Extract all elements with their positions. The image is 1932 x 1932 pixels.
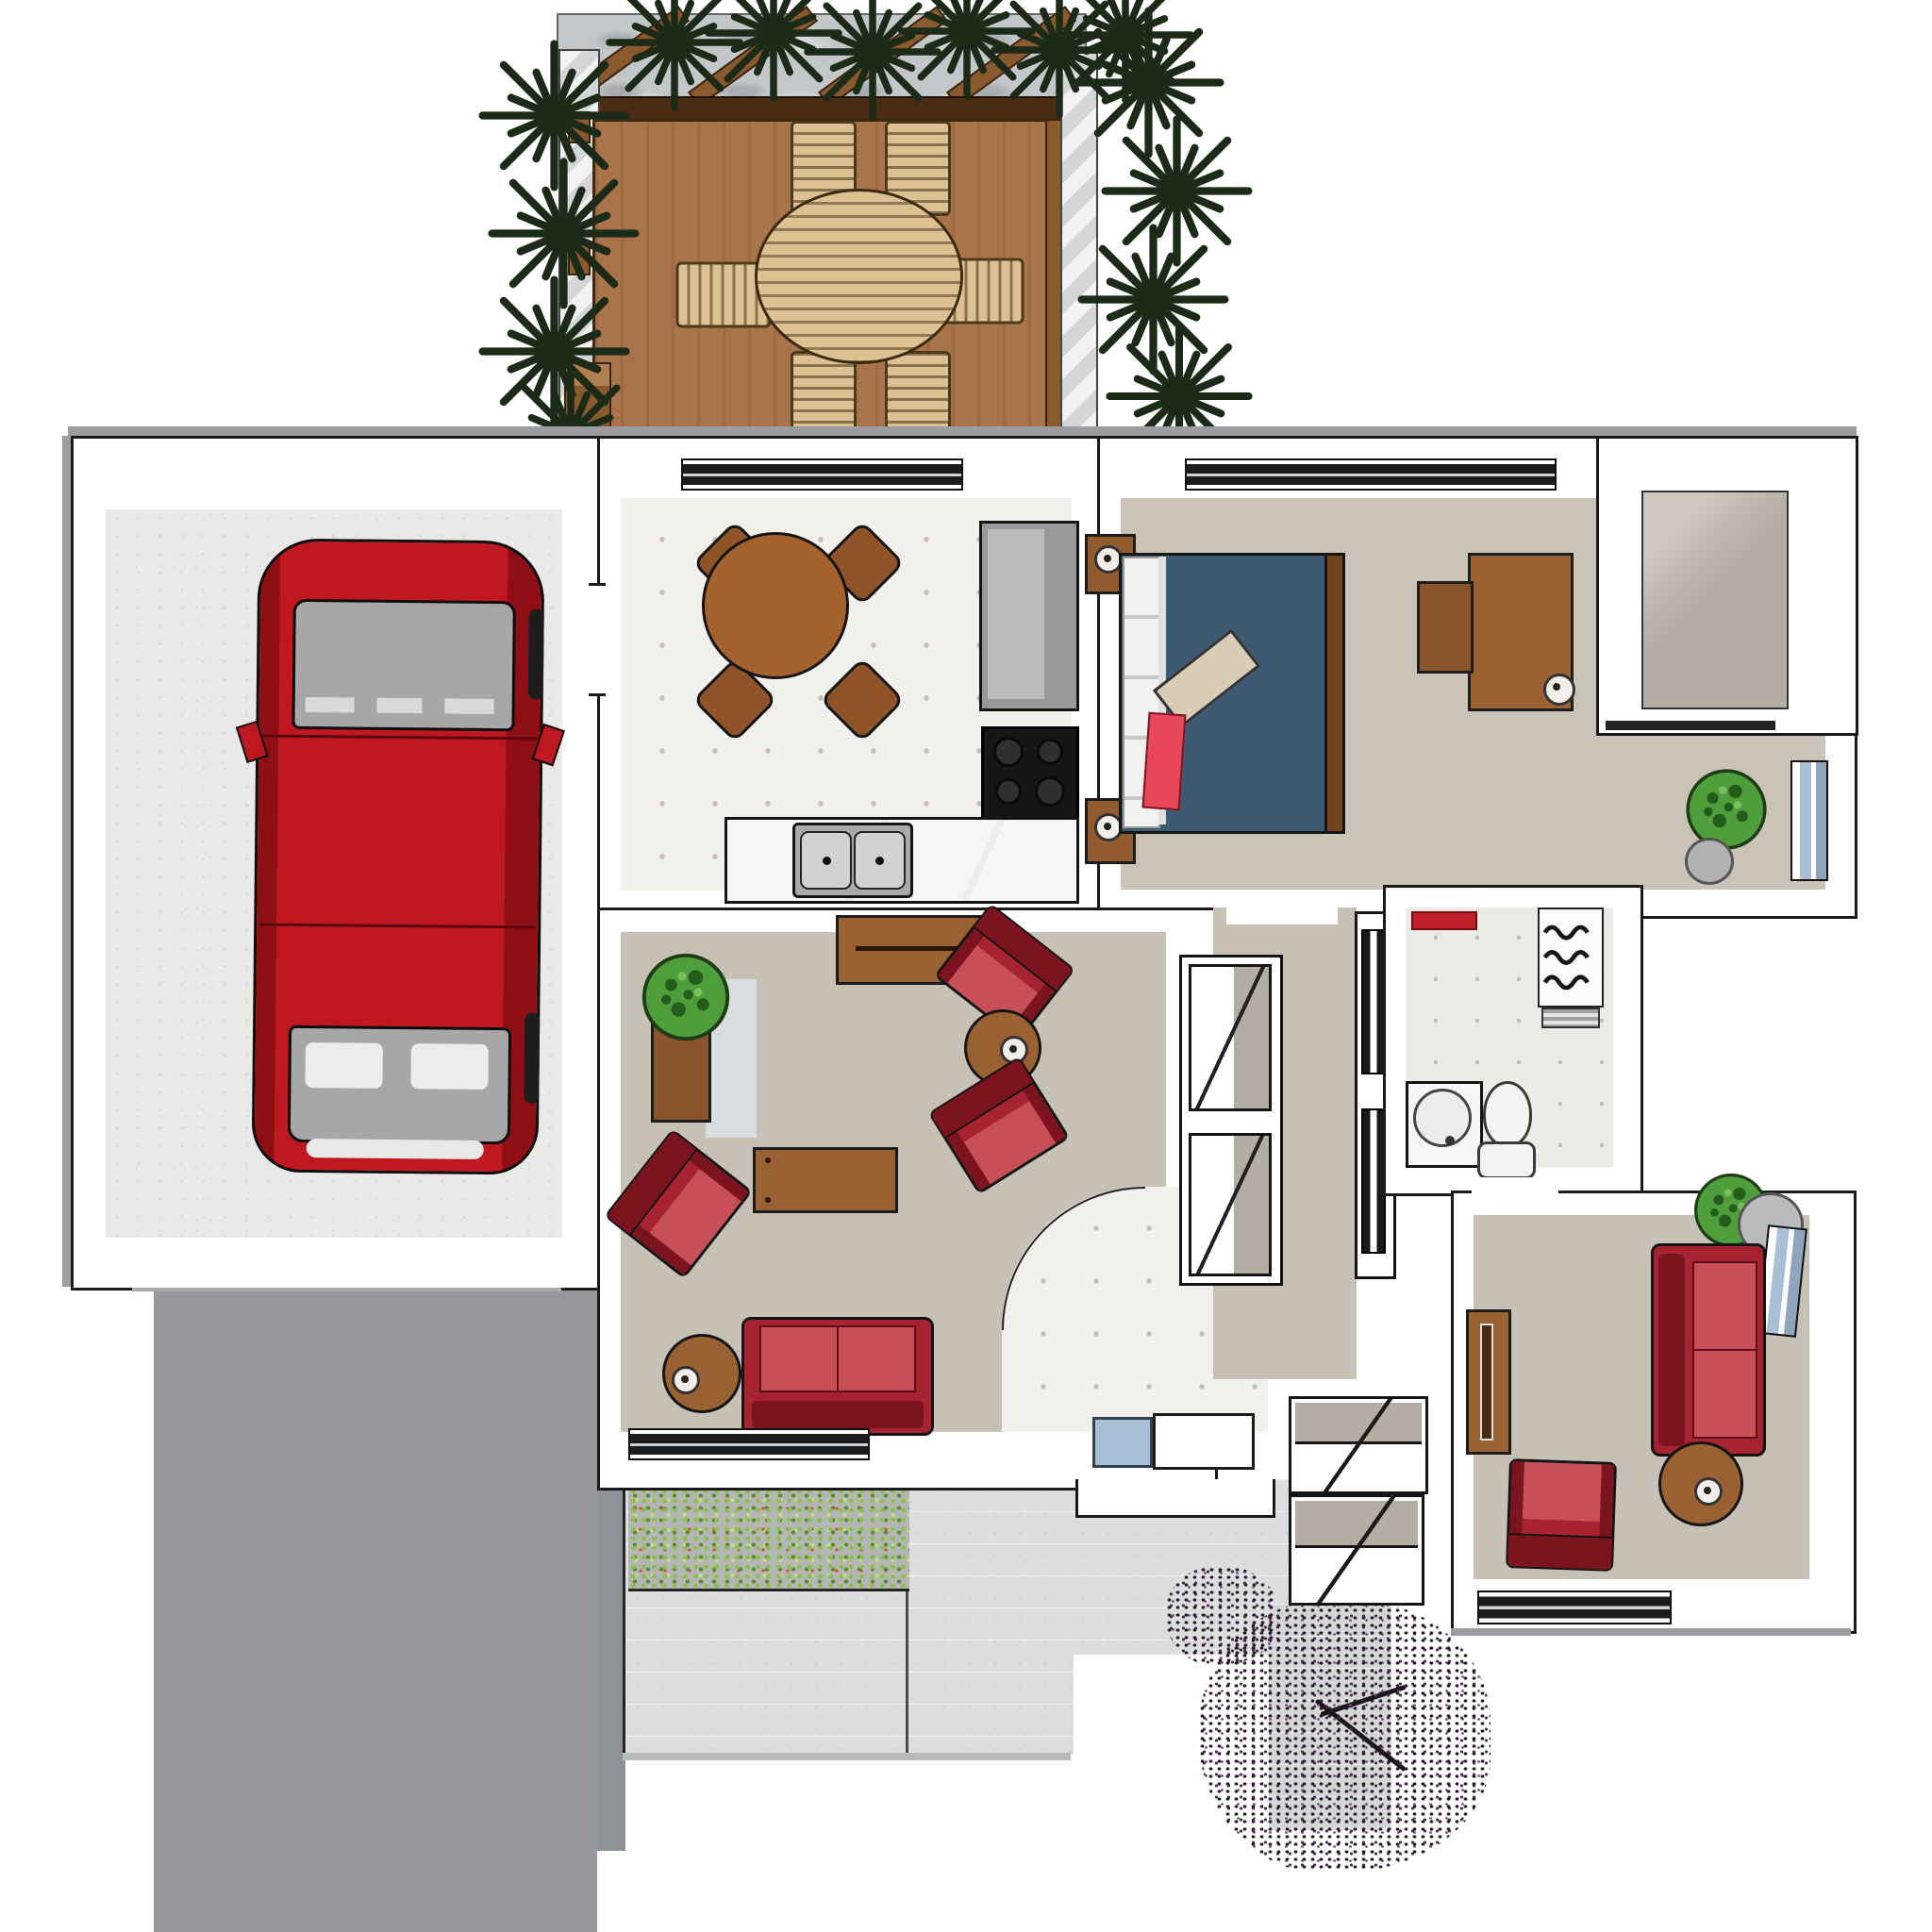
entry-step	[1075, 1479, 1275, 1518]
kitchen-window	[681, 458, 963, 491]
refrigerator	[979, 521, 1079, 711]
shower-glass-icon	[1540, 909, 1602, 1006]
car-wheel	[524, 1012, 540, 1103]
round-dining-table	[702, 532, 849, 679]
closet-floor	[1641, 491, 1789, 709]
den-door-opening	[1472, 1177, 1558, 1206]
coffee-table-knot	[765, 1158, 771, 1163]
bookshelf-slot	[1480, 1324, 1493, 1441]
bed-red-throw	[1141, 712, 1186, 811]
pedestal-sink	[1413, 1089, 1472, 1147]
garage-door-opening	[132, 1275, 561, 1291]
den-bottom-edge	[1451, 1628, 1851, 1636]
bedroom-side-window	[1790, 760, 1828, 881]
car-rear-trim	[307, 1139, 484, 1159]
bedroom-hall-opening	[1226, 892, 1338, 924]
refrigerator-door	[988, 529, 1044, 699]
stove-burner	[1037, 739, 1063, 765]
den-window	[1477, 1591, 1672, 1624]
driveway-edge	[597, 1483, 625, 1851]
car-rear-seat	[410, 1043, 488, 1090]
sofa	[741, 1317, 934, 1436]
bed-footboard	[1324, 553, 1345, 834]
hall-builtin-closet	[1179, 955, 1283, 1286]
car-wheel	[528, 608, 544, 699]
stove	[981, 726, 1079, 821]
coffee-table-knot	[765, 1197, 771, 1203]
floor-plan-canvas	[0, 0, 1932, 1932]
shower	[1538, 908, 1604, 1008]
house-left-edge	[62, 436, 71, 1287]
plant-pot	[1685, 838, 1734, 885]
sink-basin	[854, 831, 906, 890]
desk-accessory	[1543, 674, 1575, 706]
door-mat	[1092, 1417, 1153, 1468]
car-headrests	[306, 697, 494, 714]
driveway	[154, 1274, 597, 1932]
front-door-leaf	[1153, 1413, 1255, 1470]
sideboard-handle	[856, 946, 959, 951]
house-top-edge	[68, 426, 1857, 436]
living-room-window	[628, 1428, 870, 1460]
garage-kitchen-door	[589, 583, 606, 696]
shower-base	[1541, 1008, 1600, 1028]
closet-cubby	[1189, 964, 1272, 1111]
stove-burner	[993, 737, 1024, 767]
den-armchair	[1506, 1458, 1617, 1572]
flower-bed	[628, 1477, 909, 1591]
linen-closet	[1289, 1396, 1428, 1494]
red-car	[251, 538, 544, 1174]
den-sofa	[1651, 1243, 1766, 1457]
side-table-cup	[672, 1366, 700, 1394]
planter-plant-icon	[625, 936, 747, 1058]
desk-chair	[1417, 581, 1474, 674]
car-rear-seat	[305, 1042, 382, 1089]
den-bookshelf	[1466, 1309, 1511, 1455]
den-table-cup	[1694, 1477, 1723, 1506]
toilet-bowl	[1483, 1081, 1532, 1147]
toilet-tank	[1477, 1141, 1536, 1179]
coffee-table	[753, 1147, 898, 1213]
closet-cubby	[1189, 1133, 1272, 1276]
stove-burner	[1035, 776, 1065, 807]
stove-burner	[995, 778, 1022, 805]
pavement-sill	[623, 1753, 1071, 1760]
sink-basin	[800, 831, 852, 890]
closet-opening-shadow	[1606, 721, 1775, 730]
bedroom-window	[1185, 458, 1557, 491]
tree-offshoot	[1165, 1566, 1278, 1665]
bath-red-mat	[1411, 911, 1477, 930]
outdoor-dining-table	[755, 189, 963, 364]
linen-closet	[1289, 1494, 1424, 1606]
sink-faucet	[1445, 1136, 1455, 1145]
double-sink	[792, 823, 913, 898]
